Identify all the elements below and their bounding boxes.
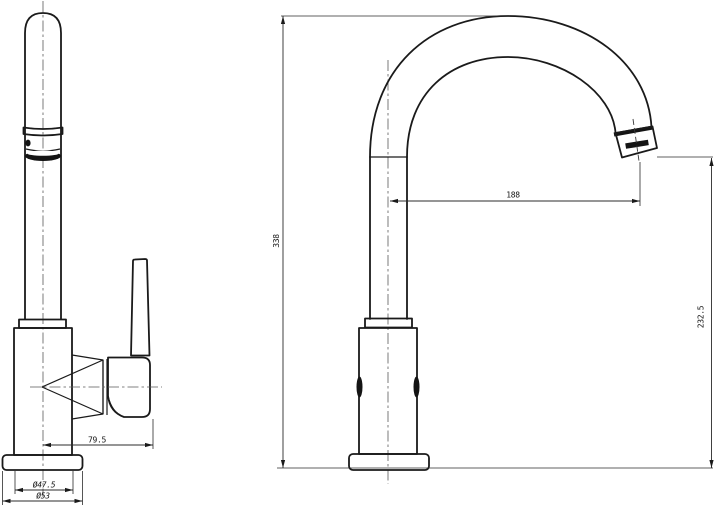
front-valve-top-edge [72,355,103,360]
dim-label-spout-reach: 188 [506,191,520,200]
side-body-right-lug [414,377,420,398]
arrowhead [709,460,713,468]
side-body-left-lug [357,377,363,398]
arrowhead [281,460,285,468]
front-joint-dot [25,140,30,147]
side-dimension-spout-reach: 188 [390,162,640,206]
arrowhead [632,199,640,203]
front-joint-band-highlight [27,151,59,156]
arrowhead [145,443,153,447]
dim-label-body-diameter: Ø47.5 [33,480,56,490]
drawing-canvas: 79.5 Ø47.5 Ø53 [0,0,720,511]
arrowhead [281,16,285,24]
front-base-flange [3,455,83,470]
arrowhead [709,158,713,166]
front-valve-bottom-edge [72,414,103,419]
dim-label-outlet-height: 232.5 [697,305,706,328]
front-handle-lever [131,259,150,356]
side-neck-collar [365,319,412,328]
arrowhead [43,443,51,447]
front-dimension-handle-offset: 79.5 [43,419,153,449]
arrowhead [390,199,398,203]
arrowhead [65,488,73,492]
side-dimension-outlet-height: 232.5 [657,157,714,468]
faucet-side-view: 338 232.5 188 [272,16,714,484]
arrowhead [3,499,11,503]
aerator-joint-band [614,128,653,135]
faucet-front-view: 79.5 Ø47.5 Ø53 [3,1,163,505]
side-spout-outer-arc [370,16,652,157]
faucet-technical-drawing: 79.5 Ø47.5 Ø53 [0,0,720,511]
front-neck-collar [19,320,66,329]
side-spout-inner-arc [407,57,616,157]
side-dimension-total-height: 338 [272,16,285,468]
dim-label-base-diameter: Ø53 [36,491,50,501]
arrowhead [15,488,23,492]
arrowhead [75,499,83,503]
dim-label-handle-offset: 79.5 [88,436,107,445]
dim-label-total-height: 338 [272,234,281,248]
